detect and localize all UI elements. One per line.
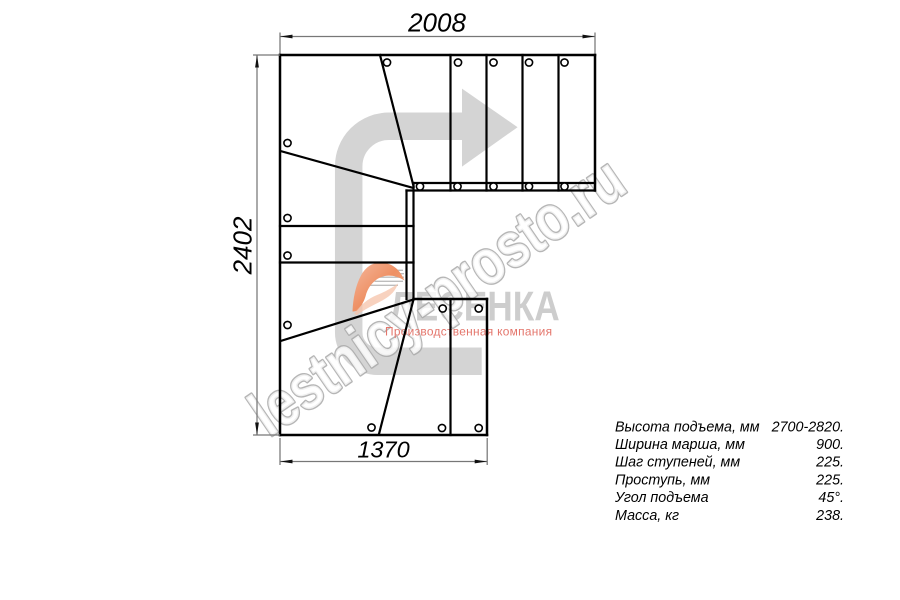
svg-text:Масса, кг: Масса, кг [615, 508, 679, 524]
svg-text:2402: 2402 [228, 216, 258, 275]
svg-text:Производственная компания: Производственная компания [385, 325, 552, 339]
svg-text:238.: 238. [815, 508, 844, 524]
svg-text:2700-2820.: 2700-2820. [771, 420, 844, 436]
svg-text:2008: 2008 [407, 8, 466, 38]
svg-text:45°.: 45°. [818, 490, 844, 506]
svg-text:Шаг ступеней, мм: Шаг ступеней, мм [615, 455, 740, 471]
svg-text:Ширина марша, мм: Ширина марша, мм [615, 437, 745, 453]
svg-text:225.: 225. [815, 473, 844, 489]
svg-text:lestnicy-prosto.ru: lestnicy-prosto.ru [237, 143, 638, 450]
svg-text:Высота подъема, мм: Высота подъема, мм [615, 420, 760, 436]
svg-text:900.: 900. [816, 437, 844, 453]
svg-text:1370: 1370 [357, 437, 409, 463]
svg-text:Угол подъема: Угол подъема [614, 490, 709, 506]
svg-text:Проступь, мм: Проступь, мм [615, 473, 710, 489]
svg-text:225.: 225. [815, 455, 844, 471]
